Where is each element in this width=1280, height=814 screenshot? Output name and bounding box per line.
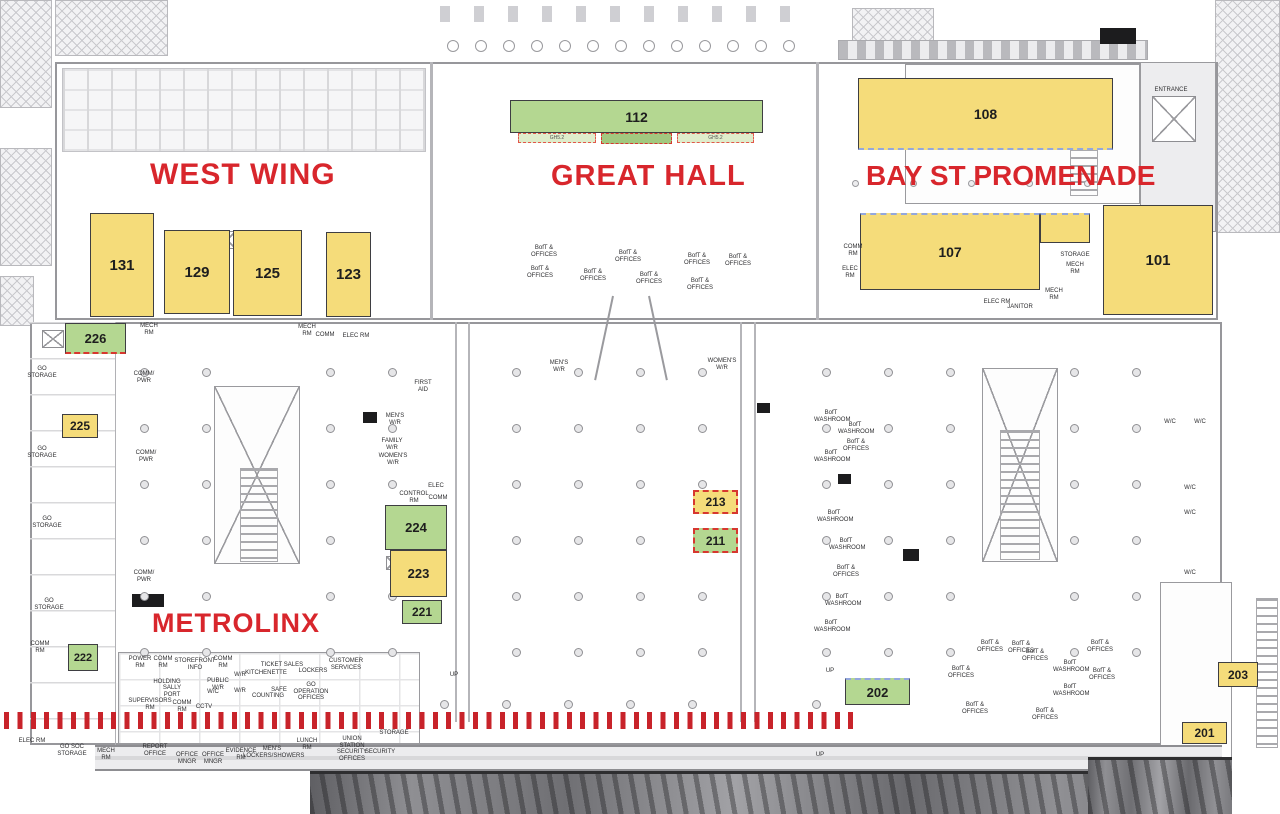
column-dot: [884, 592, 893, 601]
map-label: CUSTOMER SERVICES: [327, 658, 365, 671]
map-label: BofT & OFFICES: [1085, 640, 1115, 653]
room-211: 211: [693, 528, 738, 553]
map-label: MECH RM: [1062, 262, 1088, 275]
column-dot: [140, 480, 149, 489]
area-title-west-wing: WEST WING: [150, 158, 336, 192]
elevator-shaft: [903, 549, 919, 561]
room-224: 224: [385, 505, 447, 550]
canopy-column-icon: [447, 40, 459, 52]
column-dot: [512, 368, 521, 377]
corridor-wall: [740, 322, 742, 722]
column-dot: [698, 592, 707, 601]
map-label: COMM/ PWR: [132, 450, 160, 463]
column-dot: [698, 424, 707, 433]
east-escalator-treads: [1000, 430, 1040, 560]
column-dot: [636, 424, 645, 433]
room-number: 211: [706, 534, 725, 548]
hatched-roof-left-mid: [0, 148, 52, 266]
column-dot: [636, 592, 645, 601]
hatched-roof-left-top: [0, 0, 52, 108]
map-label: SALLY PORT: [161, 685, 183, 698]
column-dot: [884, 368, 893, 377]
room-222: 222: [68, 644, 98, 671]
room-108: 108: [858, 78, 1113, 150]
hatched-roof-left-low: [0, 276, 34, 326]
column-dot: [946, 368, 955, 377]
map-label: WOMEN'S W/R: [378, 453, 408, 466]
map-label: STORAGE: [1058, 252, 1092, 259]
column-dot: [636, 368, 645, 377]
map-label: ENTRANCE: [1148, 87, 1194, 94]
column-dot: [326, 480, 335, 489]
map-label: BofT & OFFICES: [686, 278, 714, 291]
corridor-wall: [455, 322, 457, 722]
west-wing-foodcourt-fixtures: [62, 68, 426, 152]
map-label: BofT & OFFICES: [579, 269, 607, 282]
canopy-column-icon: [475, 40, 487, 52]
map-label: OFFICE MNGR: [200, 752, 226, 765]
room-203: 203: [1218, 662, 1258, 687]
map-label: BofT & OFFICES: [960, 702, 990, 715]
map-label: UP: [448, 672, 460, 679]
room-number: 107: [938, 244, 961, 260]
map-label: GO OPERATION OFFICES: [291, 682, 331, 702]
map-label: W/R: [232, 688, 248, 695]
column-dot: [822, 424, 831, 433]
column-dot: [688, 700, 697, 709]
map-label: BofT & OFFICES: [724, 254, 752, 267]
map-label: BofT WASHROOM: [829, 538, 863, 551]
column-dot-small: [852, 180, 859, 187]
zone-stair-tab: [601, 133, 672, 144]
column-dot: [574, 648, 583, 657]
corridor-wall: [754, 322, 756, 722]
room-number: 112: [625, 109, 648, 125]
map-label: MECH RM: [136, 323, 162, 336]
column-dot: [1132, 536, 1141, 545]
column-dot: [946, 592, 955, 601]
column-dot: [202, 536, 211, 545]
room-number: 223: [408, 566, 430, 581]
column-dot: [388, 648, 397, 657]
map-label: COMM RM: [841, 244, 865, 257]
column-dot: [140, 424, 149, 433]
room-number: 224: [405, 520, 427, 535]
map-label: SUPERVISORS RM: [127, 698, 173, 711]
elevator-shaft: [838, 474, 851, 484]
column-dot: [698, 480, 707, 489]
map-label: JANITOR: [1006, 304, 1034, 311]
hatched-roof-right-tower: [1215, 0, 1280, 233]
room-221: 221: [402, 600, 442, 624]
room-131: 131: [90, 213, 154, 317]
map-label: W/C: [1182, 485, 1198, 492]
column-dot: [202, 424, 211, 433]
column-dot: [1070, 480, 1079, 489]
map-label: BofT & OFFICES: [1022, 649, 1048, 662]
room-129: 129: [164, 230, 230, 314]
map-label: FIRST AID: [410, 380, 436, 393]
column-dot: [326, 648, 335, 657]
map-label: BofT WASHROOM: [1053, 684, 1087, 697]
column-dot: [326, 592, 335, 601]
room-number: 225: [70, 419, 90, 433]
section-wall-west: [430, 62, 433, 320]
room-112: 112: [510, 100, 763, 133]
map-label: BofT & OFFICES: [526, 266, 554, 279]
roof-vent: [1100, 28, 1136, 44]
canopy-column-icon: [615, 40, 627, 52]
canopy-column-icon: [755, 40, 767, 52]
column-dot: [512, 424, 521, 433]
map-label: W/C: [1182, 570, 1198, 577]
map-label: BofT WASHROOM: [817, 510, 851, 523]
column-dot: [202, 592, 211, 601]
column-dot: [388, 368, 397, 377]
map-label: COMM: [426, 495, 450, 502]
column-dot: [812, 700, 821, 709]
column-dot: [512, 648, 521, 657]
map-label: FAMILY W/R: [379, 438, 405, 451]
map-label: ELEC RM: [18, 738, 46, 745]
map-label: COMM/ PWR: [130, 371, 158, 384]
column-dot: [626, 700, 635, 709]
hatched-roof-top-left-block: [55, 0, 168, 56]
column-dot: [388, 480, 397, 489]
column-dot: [574, 424, 583, 433]
map-label: LUNCH RM: [294, 738, 320, 751]
map-label: BofT & OFFICES: [832, 565, 860, 578]
map-label: W/C: [205, 689, 221, 696]
map-label: MECH RM: [1041, 288, 1067, 301]
right-corridor-stair: [1256, 598, 1278, 748]
room-number: 108: [974, 106, 997, 122]
map-label: CCTV: [194, 704, 214, 711]
map-label: W/C: [1182, 510, 1198, 517]
column-dot: [140, 592, 149, 601]
map-label: UP: [824, 668, 836, 675]
column-dot: [512, 480, 521, 489]
map-label: W/C: [1192, 419, 1208, 426]
map-label: GO STORAGE: [26, 446, 58, 459]
map-label: BofT & OFFICES: [1030, 708, 1060, 721]
column-dot: [1070, 368, 1079, 377]
great-hall-canopy-columns: [432, 28, 804, 62]
shaft-icon: [42, 330, 64, 348]
column-dot: [946, 480, 955, 489]
map-label: POWER RM: [127, 656, 153, 669]
map-label: COUNTING: [251, 693, 285, 700]
column-dot: [822, 480, 831, 489]
column-dot: [202, 480, 211, 489]
map-label: MEN'S W/R: [382, 413, 408, 426]
corridor-wall: [468, 322, 470, 722]
room-101: 101: [1103, 205, 1213, 315]
room-number: 203: [1228, 668, 1248, 682]
column-dot: [884, 648, 893, 657]
canopy-column-icon: [531, 40, 543, 52]
room-226: 226: [65, 323, 126, 354]
zone-gh5.2: GH5.2: [677, 133, 754, 143]
column-dot: [698, 648, 707, 657]
canopy-column-icon: [503, 40, 515, 52]
room-number: 101: [1145, 252, 1170, 269]
map-label: COMM RM: [210, 656, 236, 669]
west-escalator-treads: [240, 468, 278, 562]
map-label: BofT WASHROOM: [1053, 660, 1087, 673]
map-label: BofT WASHROOM: [825, 594, 859, 607]
room-123: 123: [326, 232, 371, 317]
map-label: BofT & OFFICES: [1088, 668, 1116, 681]
map-label: MEN'S W/R: [546, 360, 572, 373]
room-202: 202: [845, 678, 910, 705]
column-dot: [636, 480, 645, 489]
roof-tabs-strip: [440, 6, 800, 22]
room-225: 225: [62, 414, 98, 438]
area-title-great-hall: GREAT HALL: [551, 160, 746, 193]
map-label: GO SOC STORAGE: [55, 744, 89, 757]
zone-label: GH5.2: [708, 135, 722, 141]
column-dot: [440, 700, 449, 709]
map-label: KITCHENETTE: [245, 670, 287, 677]
column-dot: [564, 700, 573, 709]
map-label: BofT WASHROOM: [814, 450, 848, 463]
column-dot: [884, 424, 893, 433]
go-storage-service-strip: [30, 322, 116, 745]
column-dot: [1070, 592, 1079, 601]
column-dot: [326, 536, 335, 545]
column-dot: [946, 648, 955, 657]
room-number: 202: [867, 685, 889, 700]
map-label: BofT & OFFICES: [975, 640, 1005, 653]
column-dot: [884, 480, 893, 489]
track-photo-strip: [310, 771, 1160, 814]
map-label: ELEC RM: [342, 333, 370, 340]
room-201: 201: [1182, 722, 1227, 744]
skylight-icon: [1152, 96, 1196, 142]
column-dot: [1070, 536, 1079, 545]
map-label: OFFICE MNGR: [174, 752, 200, 765]
room-number: 213: [705, 495, 725, 509]
room-number: 201: [1194, 726, 1214, 740]
column-dot: [1132, 592, 1141, 601]
column-dot: [1132, 368, 1141, 377]
column-dot: [946, 424, 955, 433]
map-label: MECH RM: [94, 748, 118, 761]
map-label: GO STORAGE: [31, 516, 63, 529]
map-label: REPORT OFFICE: [139, 744, 171, 757]
room-number: 125: [255, 265, 280, 282]
column-dot: [574, 536, 583, 545]
canopy-column-icon: [587, 40, 599, 52]
room-223: 223: [390, 550, 447, 597]
column-dot: [1070, 648, 1079, 657]
area-title-metrolinx: METROLINX: [152, 608, 320, 639]
room-number: 221: [412, 605, 432, 619]
map-label: SAFE: [270, 687, 288, 694]
zone-gh5.2: GH5.2: [518, 133, 596, 143]
track-photo-corner: [1088, 757, 1232, 814]
map-label: BofT & OFFICES: [946, 666, 976, 679]
room-125: 125: [233, 230, 302, 316]
map-label: MEN'S LOCKERS/SHOWERS: [243, 746, 301, 759]
column-dot: [822, 368, 831, 377]
column-dot: [326, 368, 335, 377]
column-dot: [202, 368, 211, 377]
area-title-bay-st-promenade: BAY ST PROMENADE: [866, 160, 1155, 192]
column-dot: [636, 536, 645, 545]
map-label: W/C: [1162, 419, 1178, 426]
elevator-shaft: [363, 412, 377, 423]
map-label: WOMEN'S W/R: [706, 358, 738, 371]
column-dot: [140, 536, 149, 545]
map-label: ELEC RM: [837, 266, 863, 279]
column-dot: [1070, 424, 1079, 433]
column-dot: [822, 648, 831, 657]
room-number: 123: [336, 266, 361, 283]
canopy-column-icon: [671, 40, 683, 52]
room-number: 226: [85, 331, 107, 346]
column-dot: [574, 592, 583, 601]
canopy-column-icon: [727, 40, 739, 52]
map-label: BofT & OFFICES: [530, 245, 558, 258]
column-dot: [502, 700, 511, 709]
room-213: 213: [693, 490, 738, 514]
map-label: BofT & OFFICES: [635, 272, 663, 285]
map-label: UP: [814, 752, 826, 759]
column-dot: [512, 592, 521, 601]
column-dot: [1132, 424, 1141, 433]
canopy-column-icon: [699, 40, 711, 52]
canopy-column-icon: [783, 40, 795, 52]
column-dot: [884, 536, 893, 545]
column-dot: [946, 536, 955, 545]
canopy-column-icon: [643, 40, 655, 52]
elevator-shaft: [757, 403, 770, 413]
map-label: BofT WASHROOM: [838, 422, 872, 435]
column-dot: [574, 480, 583, 489]
zone-label: GH5.2: [550, 135, 564, 141]
map-label: STORAGE: [379, 730, 409, 737]
map-label: COMM: [313, 332, 337, 339]
map-label: BofT & OFFICES: [614, 250, 642, 263]
map-label: GO STORAGE: [33, 598, 65, 611]
column-dot: [326, 424, 335, 433]
map-label: LOCKERS: [297, 668, 329, 675]
map-label: GO STORAGE: [26, 366, 58, 379]
floor-plan-canvas: { "colors":{ "room_yellow":"#F5DC7A", "r…: [0, 0, 1280, 814]
room-number: 222: [74, 652, 92, 664]
column-dot: [1132, 480, 1141, 489]
platform-edge-tick-line: [4, 712, 858, 729]
map-label: ELEC: [426, 483, 446, 490]
column-dot: [1132, 648, 1141, 657]
map-label: SECURITY: [364, 749, 396, 756]
canopy-column-icon: [559, 40, 571, 52]
map-label: W/R: [232, 672, 248, 679]
room-107: 107: [860, 213, 1040, 290]
map-label: COMM/ PWR: [130, 570, 158, 583]
map-label: BofT & OFFICES: [683, 253, 711, 266]
room-number: 131: [109, 257, 134, 274]
map-label: COMM RM: [26, 641, 54, 654]
column-dot: [636, 648, 645, 657]
section-wall-east: [816, 62, 819, 320]
map-label: BofT WASHROOM: [814, 620, 848, 633]
column-dot: [512, 536, 521, 545]
column-dot: [574, 368, 583, 377]
room-annex: [1040, 213, 1090, 243]
room-number: 129: [184, 264, 209, 281]
